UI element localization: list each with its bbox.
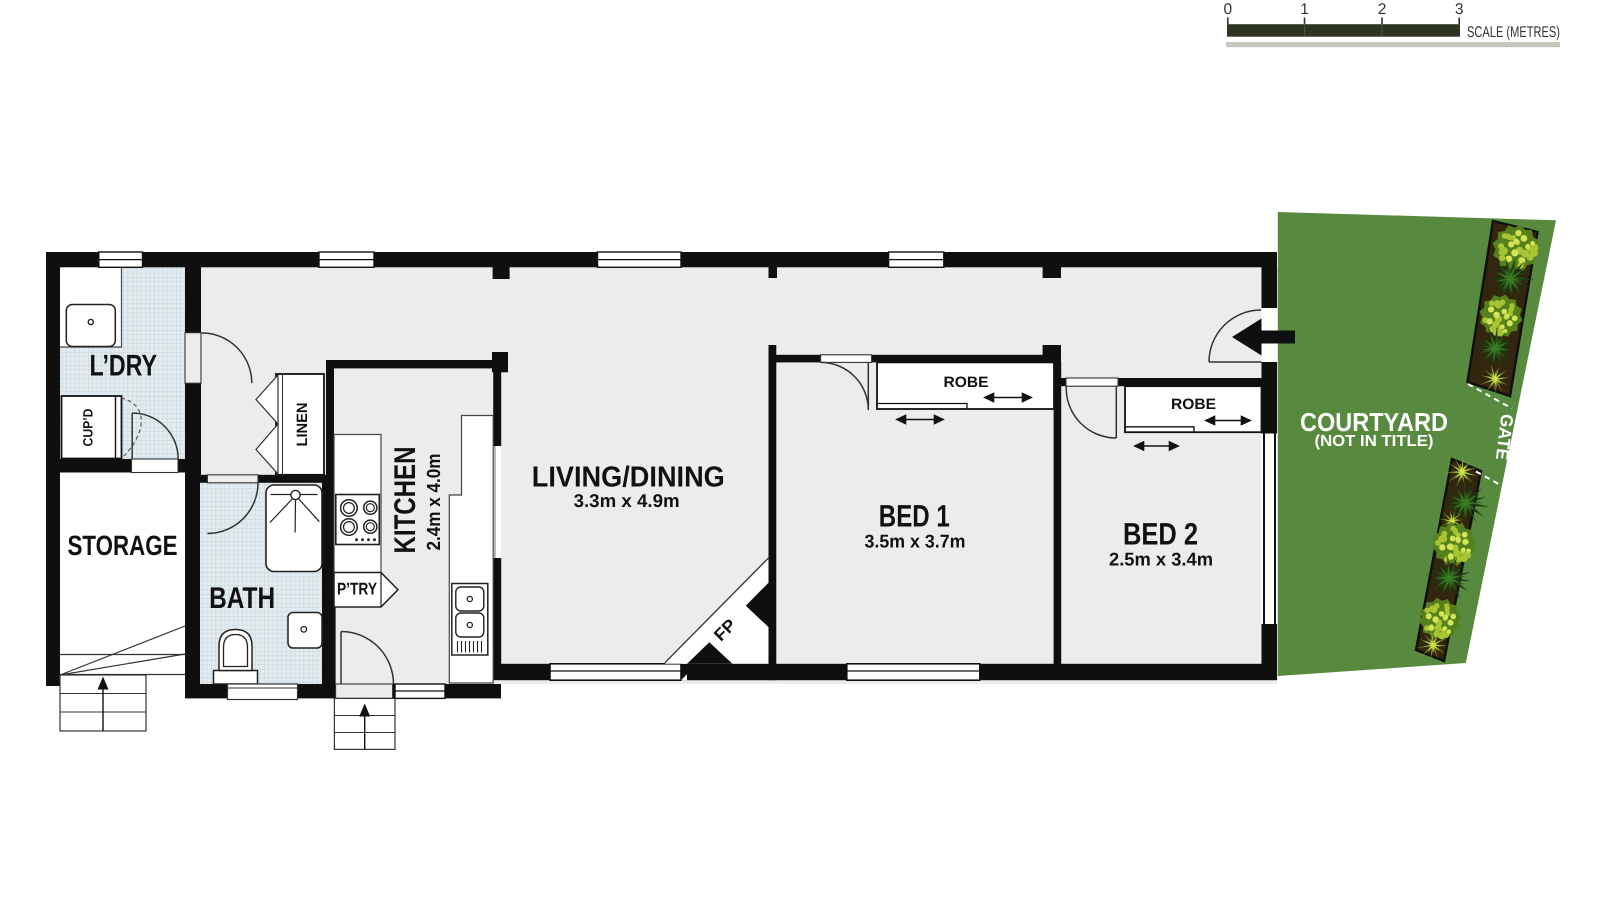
svg-text:BED 2: BED 2 [1123,517,1198,552]
svg-text:L’DRY: L’DRY [90,349,158,382]
svg-text:P’TRY: P’TRY [337,580,378,599]
svg-text:3: 3 [1455,1,1464,18]
svg-text:ROBE: ROBE [944,374,989,391]
svg-text:(NOT IN TITLE): (NOT IN TITLE) [1315,433,1434,450]
svg-text:0: 0 [1223,1,1232,18]
svg-text:1: 1 [1300,1,1309,18]
svg-text:KITCHEN: KITCHEN [389,447,422,554]
svg-text:CUP’D: CUP’D [81,408,96,446]
svg-text:SCALE (METRES): SCALE (METRES) [1467,24,1560,41]
svg-text:ROBE: ROBE [1171,396,1216,413]
svg-text:3.3m x 4.9m: 3.3m x 4.9m [574,490,680,511]
svg-text:BATH: BATH [209,582,275,615]
svg-text:2: 2 [1378,1,1387,18]
svg-text:STORAGE: STORAGE [68,530,178,561]
svg-text:2.5m x 3.4m: 2.5m x 3.4m [1109,549,1213,570]
svg-text:LIVING/DINING: LIVING/DINING [532,461,725,493]
svg-text:3.5m x 3.7m: 3.5m x 3.7m [865,531,966,552]
svg-text:BED 1: BED 1 [879,499,950,534]
svg-text:2.4m x 4.0m: 2.4m x 4.0m [424,454,445,551]
svg-text:LINEN: LINEN [294,403,311,447]
